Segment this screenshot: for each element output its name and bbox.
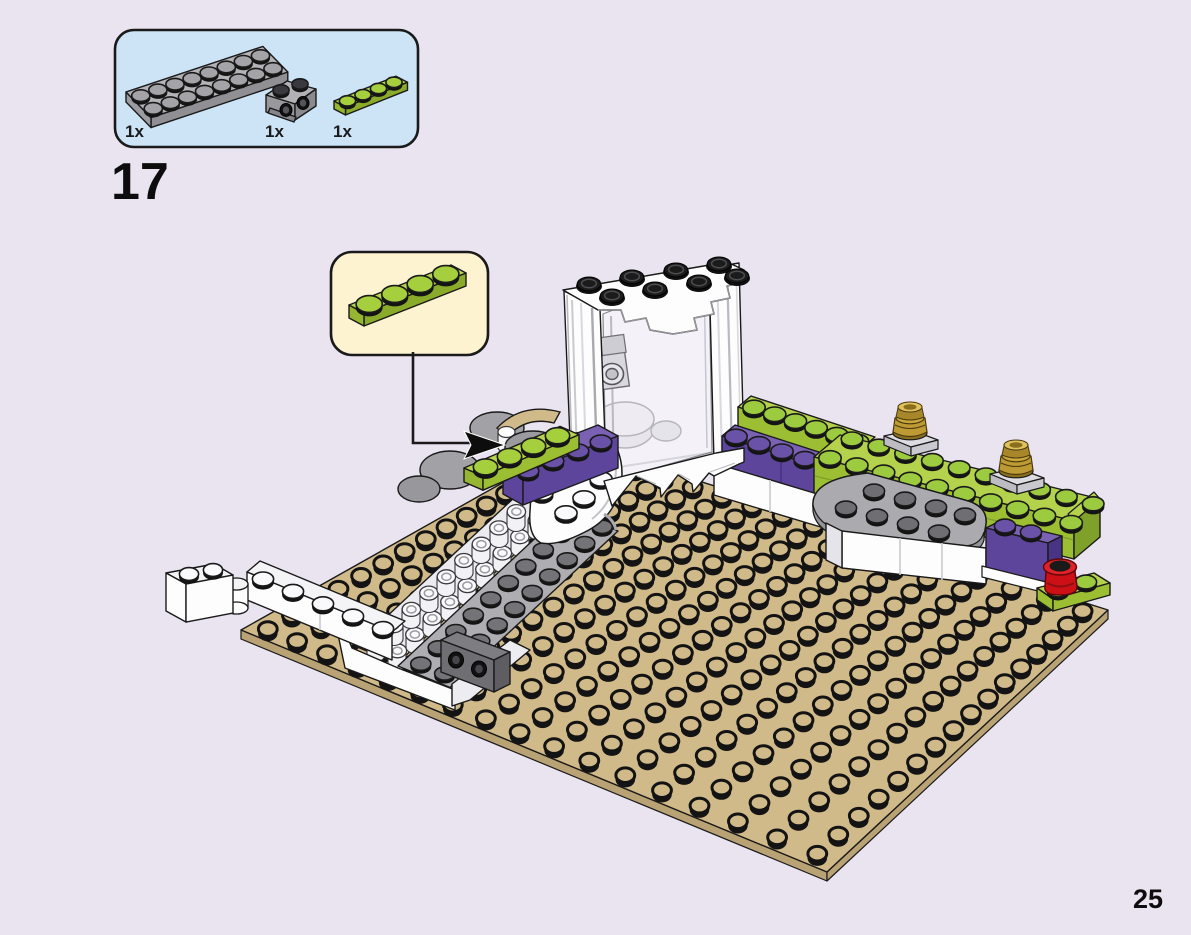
svg-text:25: 25 (1133, 884, 1163, 914)
svg-text:17: 17 (111, 153, 169, 211)
svg-text:1x: 1x (125, 122, 144, 141)
svg-text:1x: 1x (265, 122, 284, 141)
svg-text:1x: 1x (333, 122, 352, 141)
